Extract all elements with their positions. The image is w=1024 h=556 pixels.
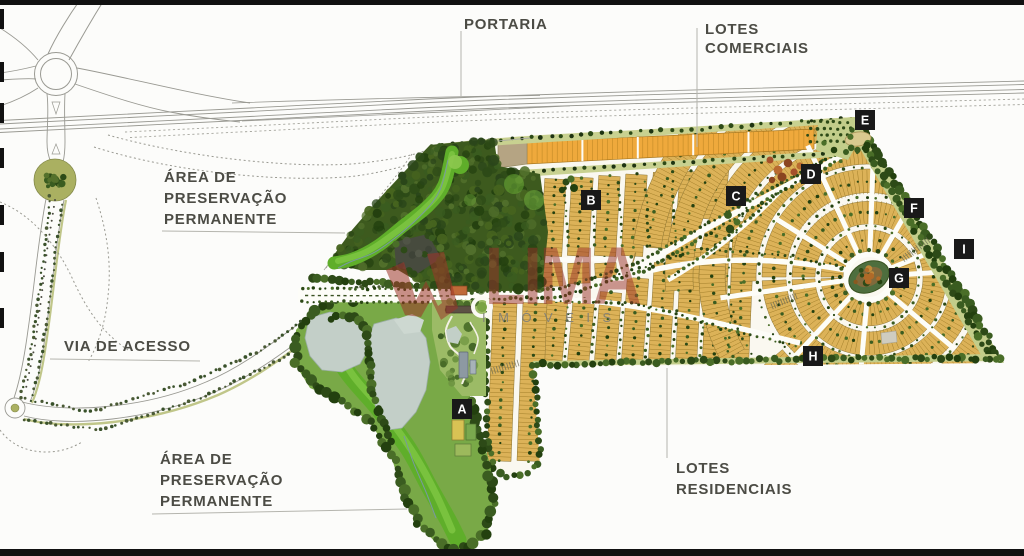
svg-text:RESIDENCIAIS: RESIDENCIAIS (676, 481, 792, 498)
svg-text:PERMANENTE: PERMANENTE (160, 493, 273, 510)
svg-text:I: I (962, 243, 965, 257)
svg-text:PORTARIA: PORTARIA (464, 16, 548, 33)
svg-text:ÁREA DE: ÁREA DE (164, 169, 237, 186)
svg-text:COMERCIAIS: COMERCIAIS (705, 40, 809, 57)
svg-text:LOTES: LOTES (705, 21, 759, 38)
svg-text:VIA DE ACESSO: VIA DE ACESSO (64, 338, 191, 355)
svg-text:F: F (910, 202, 918, 216)
svg-text:A: A (457, 403, 466, 417)
svg-text:D: D (806, 168, 815, 182)
svg-text:G: G (894, 272, 904, 286)
svg-text:PRESERVAÇÃO: PRESERVAÇÃO (160, 471, 283, 489)
svg-text:B: B (586, 194, 595, 208)
svg-text:LOTES: LOTES (676, 460, 730, 477)
svg-text:H: H (808, 350, 817, 364)
svg-text:C: C (731, 190, 740, 204)
svg-text:ÁREA DE: ÁREA DE (160, 451, 233, 468)
svg-text:PERMANENTE: PERMANENTE (164, 211, 277, 228)
svg-text:E: E (861, 114, 869, 128)
svg-text:PRESERVAÇÃO: PRESERVAÇÃO (164, 189, 287, 207)
svg-text:LIMA: LIMA (485, 230, 641, 322)
svg-text:IMÓVEIS: IMÓVEIS (482, 310, 624, 325)
